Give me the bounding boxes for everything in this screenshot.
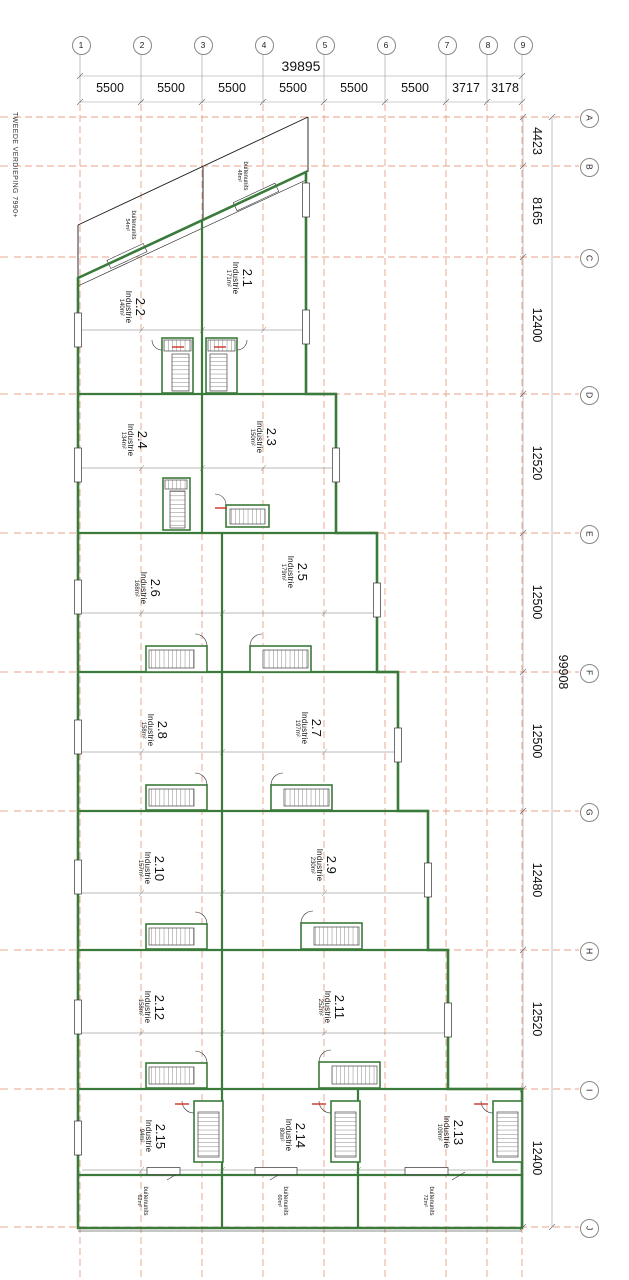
dim-top-seg-1: 5500 (96, 81, 124, 95)
dim-top-total: 39895 (282, 58, 321, 74)
room-number: 2.8 (155, 714, 170, 746)
column-bubble-4: 4 (255, 36, 274, 55)
room-label-2-15: 2.15 Industrie 94m² (138, 1120, 168, 1152)
room-label-2-8: 2.8 Industrie 158m² (140, 714, 170, 746)
room-label-2-12: 2.12 Industrie 158m² (137, 991, 167, 1023)
room-number: 2.14 (293, 1119, 308, 1151)
dim-right-seg-3: 12400 (530, 308, 544, 343)
outdoor-units-text: buitenunits (282, 1186, 288, 1215)
room-type: Industrie (139, 572, 148, 604)
floorplan-drawing: TWEEDE VERDIEPING 7990+ 1 2 3 4 5 6 7 8 … (0, 0, 629, 1280)
room-type: Industrie (231, 262, 240, 294)
dim-right-seg-5: 12500 (530, 585, 544, 620)
dim-top-seg-7: 3717 (452, 81, 480, 95)
dim-top-seg-8: 3178 (491, 81, 519, 95)
dim-right-seg-7: 12480 (530, 863, 544, 898)
room-type: Industrie (144, 1120, 153, 1152)
row-bubble-C: C (580, 249, 599, 268)
room-type: Industrie (284, 1119, 293, 1151)
room-label-2-3: 2.3 Industrie 150m² (249, 421, 279, 453)
room-label-2-5: 2.5 Industrie 179m² (280, 556, 310, 588)
dim-right-seg-9: 12400 (530, 1141, 544, 1176)
room-type: Industrie (323, 991, 332, 1023)
room-type: Industrie (124, 291, 133, 323)
room-number: 2.13 (451, 1116, 466, 1148)
room-number: 2.7 (309, 712, 324, 744)
roof-edge-lines (78, 117, 522, 1231)
outdoor-units-text: buitenunits (242, 161, 248, 190)
row-bubble-G: G (580, 803, 599, 822)
room-type: Industrie (126, 424, 135, 456)
room-label-2-9: 2.9 Industrie 230m² (309, 849, 339, 881)
room-type: Industrie (300, 712, 309, 744)
room-type: Industrie (255, 421, 264, 453)
row-bubble-B: B (580, 158, 599, 177)
dim-right-seg-4: 12520 (530, 446, 544, 481)
room-label-2-6: 2.6 Industrie 168m² (133, 572, 163, 604)
room-type: Industrie (442, 1116, 451, 1148)
room-number: 2.1 (240, 262, 255, 294)
room-label-2-2: 2.2 Industrie 140m² (118, 291, 148, 323)
room-number: 2.9 (324, 849, 339, 881)
room-number: 2.3 (264, 421, 279, 453)
room-number: 2.12 (152, 991, 167, 1023)
outdoor-units-label-2: buitenunits 48m² (236, 161, 248, 190)
room-number: 2.5 (295, 556, 310, 588)
outdoor-units-text: buitenunits (142, 1186, 148, 1215)
dim-right-total: 99908 (556, 655, 570, 690)
dim-right-seg-6: 12500 (530, 724, 544, 759)
room-type: Industrie (143, 852, 152, 884)
floorplan-linework (0, 0, 629, 1280)
dim-right-seg-1: 4423 (530, 127, 544, 155)
room-label-2-7: 2.7 Industrie 197m² (294, 712, 324, 744)
room-label-2-13: 2.13 Industrie 109m² (436, 1116, 466, 1148)
column-bubble-1: 1 (72, 36, 91, 55)
outdoor-units-label-1: buitenunits 54m² (124, 210, 136, 239)
dim-right-seg-8: 12520 (530, 1002, 544, 1037)
room-number: 2.4 (135, 424, 150, 456)
column-bubble-8: 8 (479, 36, 498, 55)
column-bubble-5: 5 (316, 36, 335, 55)
room-type: Industrie (143, 991, 152, 1023)
column-bubble-2: 2 (133, 36, 152, 55)
room-number: 2.2 (133, 291, 148, 323)
room-number: 2.11 (332, 991, 347, 1023)
room-label-2-14: 2.14 Industrie 80m² (278, 1119, 308, 1151)
room-label-2-1: 2.1 Industrie 171m² (225, 262, 255, 294)
outdoor-units-label-5: buitenunits 72m² (422, 1186, 434, 1215)
room-number: 2.6 (148, 572, 163, 604)
dim-top-seg-3: 5500 (218, 81, 246, 95)
row-bubble-E: E (580, 525, 599, 544)
room-number: 2.10 (152, 852, 167, 884)
outdoor-units-text: buitenunits (130, 210, 136, 239)
room-label-2-11: 2.11 Industrie 252m² (317, 991, 347, 1023)
row-bubble-F: F (580, 664, 599, 683)
row-bubble-H: H (580, 942, 599, 961)
column-bubble-9: 9 (514, 36, 533, 55)
room-number: 2.15 (153, 1120, 168, 1152)
dimension-lines (77, 53, 555, 1230)
building-walls (78, 172, 522, 1228)
dim-top-seg-4: 5500 (279, 81, 307, 95)
row-bubble-I: I (580, 1081, 599, 1100)
dim-right-seg-2: 8165 (530, 197, 544, 225)
grid-lines (0, 104, 579, 1280)
column-bubble-6: 6 (377, 36, 396, 55)
outdoor-units-label-4: buitenunits 60m² (276, 1186, 288, 1215)
door-swings (152, 340, 493, 1180)
room-type: Industrie (286, 556, 295, 588)
row-bubble-A: A (580, 109, 599, 128)
outdoor-units-label-3: buitenunits 62m² (136, 1186, 148, 1215)
dim-top-seg-6: 5500 (401, 81, 429, 95)
row-bubble-D: D (580, 386, 599, 405)
floor-title: TWEEDE VERDIEPING 7990+ (11, 112, 18, 218)
column-bubble-3: 3 (194, 36, 213, 55)
dim-top-seg-5: 5500 (340, 81, 368, 95)
room-label-2-4: 2.4 Industrie 134m² (120, 424, 150, 456)
row-bubble-J: J (580, 1219, 599, 1238)
outdoor-units-text: buitenunits (428, 1186, 434, 1215)
column-bubble-7: 7 (438, 36, 457, 55)
room-type: Industrie (315, 849, 324, 881)
dim-top-seg-2: 5500 (157, 81, 185, 95)
room-type: Industrie (146, 714, 155, 746)
room-label-2-10: 2.10 Industrie 157m² (137, 852, 167, 884)
